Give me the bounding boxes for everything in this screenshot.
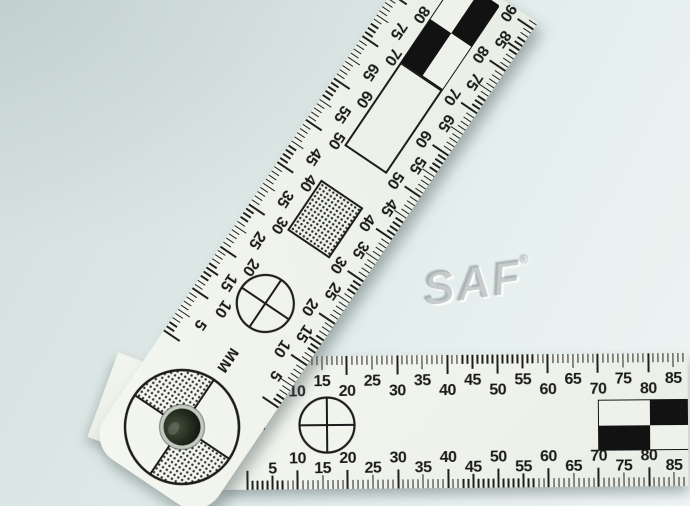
tick-mark xyxy=(322,94,330,100)
tick-mark xyxy=(583,478,584,487)
scale-number: 5 xyxy=(268,368,283,382)
tick-mark xyxy=(347,289,355,295)
tick-mark xyxy=(486,83,494,89)
tick-mark xyxy=(237,221,245,227)
tick-mark xyxy=(262,481,263,490)
tick-mark xyxy=(163,330,180,342)
scale-number: 55 xyxy=(514,374,531,386)
tick-mark xyxy=(682,353,683,362)
tick-mark xyxy=(628,477,629,486)
tick-mark xyxy=(371,23,379,29)
tick-mark xyxy=(507,355,508,364)
tick-mark xyxy=(663,477,664,486)
tick-mark xyxy=(483,479,484,488)
tick-mark xyxy=(379,10,387,16)
tick-mark xyxy=(432,162,440,168)
registered-trademark-icon: ® xyxy=(518,252,529,267)
tick-mark xyxy=(307,480,308,489)
tick-mark xyxy=(462,355,463,364)
tick-mark xyxy=(607,354,608,363)
scale-number: 20 xyxy=(339,386,356,398)
tick-mark xyxy=(333,310,341,316)
tick-mark xyxy=(553,478,554,487)
tick-mark xyxy=(577,354,578,363)
scale-number: 55 xyxy=(407,154,426,175)
tick-mark xyxy=(513,478,514,487)
tick-mark xyxy=(517,36,525,42)
tick-mark xyxy=(305,119,322,131)
tick-mark xyxy=(382,6,390,12)
tick-mark xyxy=(578,478,579,487)
tick-mark xyxy=(509,49,517,55)
scale-number: 25 xyxy=(364,376,381,388)
tick-mark xyxy=(381,238,389,244)
tick-mark xyxy=(547,354,549,373)
tick-mark xyxy=(506,53,514,59)
scale-number: 40 xyxy=(440,452,457,464)
tick-mark xyxy=(468,479,469,488)
tick-mark xyxy=(316,356,317,365)
scale-number: 15 xyxy=(314,463,331,475)
scale-number: 50 xyxy=(326,130,345,151)
tick-mark xyxy=(395,217,403,223)
tick-mark xyxy=(172,317,180,323)
tick-mark xyxy=(257,481,258,490)
scale-number: 45 xyxy=(464,375,481,387)
tick-mark xyxy=(326,356,327,365)
tick-mark xyxy=(248,203,265,215)
scale-number: 65 xyxy=(565,461,582,473)
tick-mark xyxy=(243,212,251,218)
tick-mark xyxy=(438,154,446,160)
tick-mark xyxy=(276,394,284,400)
tick-mark xyxy=(613,478,614,487)
tick-mark xyxy=(368,27,376,33)
tick-mark xyxy=(293,368,301,374)
tick-mark xyxy=(475,99,483,105)
tick-mark xyxy=(432,144,449,156)
tick-mark xyxy=(347,270,364,282)
tick-mark xyxy=(653,477,654,486)
tick-mark xyxy=(406,355,407,364)
tick-mark xyxy=(181,305,189,311)
tick-mark xyxy=(657,353,658,362)
tick-mark xyxy=(331,356,332,365)
tick-mark xyxy=(502,355,503,364)
tick-mark xyxy=(557,354,558,363)
tick-mark xyxy=(460,102,477,114)
tick-mark xyxy=(679,477,680,486)
scale-number: 65 xyxy=(564,374,581,386)
tick-mark xyxy=(463,116,471,122)
tick-mark xyxy=(169,321,177,327)
tick-mark xyxy=(412,479,413,488)
tick-mark xyxy=(302,124,310,130)
tick-mark xyxy=(568,478,569,487)
tick-mark xyxy=(272,476,273,490)
tick-mark xyxy=(391,356,392,365)
tick-mark xyxy=(266,179,274,185)
tick-mark xyxy=(466,112,474,118)
tick-mark xyxy=(487,355,488,364)
tick-mark xyxy=(446,355,448,374)
scale-number: 60 xyxy=(540,451,557,463)
tick-mark xyxy=(325,90,333,96)
tick-mark xyxy=(582,354,583,363)
scale-number: 35 xyxy=(414,375,431,387)
tick-mark xyxy=(592,354,593,363)
checker-cell-black xyxy=(599,425,649,450)
tick-mark xyxy=(283,153,291,159)
tick-mark xyxy=(622,353,623,367)
checker-cell-white xyxy=(650,424,689,449)
tick-mark xyxy=(294,137,302,143)
tick-mark xyxy=(297,470,299,489)
tick-mark xyxy=(533,478,534,487)
tick-mark xyxy=(354,48,362,54)
tick-mark xyxy=(192,288,209,300)
tick-mark xyxy=(642,353,643,362)
tick-mark xyxy=(246,471,248,490)
tick-mark xyxy=(608,478,609,487)
tick-mark xyxy=(543,478,544,487)
scale-number: 35 xyxy=(275,188,294,209)
tick-mark xyxy=(317,480,318,489)
scale-number: 70 xyxy=(441,86,460,107)
tick-mark xyxy=(597,354,599,373)
tick-mark xyxy=(246,208,254,214)
tick-mark xyxy=(209,263,217,269)
scale-number: 45 xyxy=(303,145,322,166)
tick-mark xyxy=(203,271,211,277)
tick-mark xyxy=(311,111,319,117)
tick-mark xyxy=(307,347,315,353)
tick-mark xyxy=(418,479,419,488)
tick-mark xyxy=(652,353,653,362)
tick-mark xyxy=(452,355,453,364)
scale-number: 80 xyxy=(640,450,657,462)
tick-mark xyxy=(385,2,393,8)
scale-number: 40 xyxy=(356,212,375,233)
tick-mark xyxy=(390,225,398,231)
tick-mark xyxy=(643,477,644,486)
tick-mark xyxy=(520,32,528,38)
scale-number: 40 xyxy=(439,385,456,397)
scale-number: 15 xyxy=(313,376,330,388)
tick-mark xyxy=(532,354,533,363)
scale-number: 30 xyxy=(269,214,288,235)
tick-mark xyxy=(288,377,296,383)
tick-mark xyxy=(552,354,553,363)
tick-mark xyxy=(352,480,353,489)
tick-mark xyxy=(458,479,459,488)
tick-mark xyxy=(392,221,400,227)
tick-mark xyxy=(422,474,423,488)
tick-mark xyxy=(463,479,464,488)
scale-number: 5 xyxy=(268,464,277,476)
tick-mark xyxy=(416,355,417,364)
tick-mark xyxy=(538,478,539,487)
scale-number: 65 xyxy=(360,61,379,82)
scale-number: 5 xyxy=(192,317,207,331)
tick-mark xyxy=(342,480,343,489)
tick-mark xyxy=(673,472,674,486)
tick-mark xyxy=(428,479,429,488)
tick-mark xyxy=(404,186,421,198)
tick-mark xyxy=(367,259,375,265)
tick-mark xyxy=(617,354,618,363)
tick-mark xyxy=(426,355,427,364)
tick-mark xyxy=(453,479,454,488)
scale-number: 35 xyxy=(415,462,432,474)
tick-mark xyxy=(333,77,350,89)
tick-mark xyxy=(496,355,498,374)
tick-mark xyxy=(229,233,237,239)
tick-mark xyxy=(232,229,240,235)
tick-mark xyxy=(421,355,422,369)
tick-mark xyxy=(297,132,305,138)
tick-mark xyxy=(321,356,322,370)
tick-mark xyxy=(563,478,564,487)
tick-mark xyxy=(567,354,568,363)
tick-mark xyxy=(548,468,550,487)
tick-mark xyxy=(279,389,287,395)
tick-mark xyxy=(375,228,392,240)
scale-number: 20 xyxy=(339,453,356,465)
tick-mark xyxy=(252,481,253,490)
tick-mark xyxy=(339,301,347,307)
scale-number: 25 xyxy=(247,230,266,251)
scale-number: 60 xyxy=(539,384,556,396)
tick-mark xyxy=(376,356,377,365)
tick-mark xyxy=(558,478,559,487)
tick-mark xyxy=(477,355,478,364)
scale-number: 15 xyxy=(218,272,237,293)
tick-mark xyxy=(305,352,313,358)
tick-mark xyxy=(331,82,339,88)
tick-mark xyxy=(274,166,282,172)
tick-mark xyxy=(517,354,518,363)
tick-mark xyxy=(438,479,439,488)
scale-number: 45 xyxy=(465,462,482,474)
tick-mark xyxy=(189,292,197,298)
tick-mark xyxy=(377,480,378,489)
scale-number: 25 xyxy=(364,463,381,475)
tick-mark xyxy=(429,167,437,173)
scale-number: 50 xyxy=(489,385,506,397)
scale-number: 85 xyxy=(666,460,683,472)
tick-mark xyxy=(364,263,372,269)
tick-mark xyxy=(684,477,685,486)
scale-number: 75 xyxy=(388,19,407,40)
scale-number: 60 xyxy=(413,128,432,149)
tick-mark xyxy=(443,479,444,488)
tick-mark xyxy=(372,475,373,489)
horizontal-checker-pattern xyxy=(598,399,688,451)
tick-mark xyxy=(175,313,183,319)
tick-mark xyxy=(669,477,670,486)
tick-mark xyxy=(375,246,383,252)
tick-mark xyxy=(523,473,524,487)
tick-mark xyxy=(367,480,368,489)
tick-mark xyxy=(198,279,206,285)
tick-mark xyxy=(488,479,489,488)
tick-mark xyxy=(421,179,429,185)
tick-mark xyxy=(662,353,663,362)
tick-mark xyxy=(424,175,432,181)
tick-mark xyxy=(658,477,659,486)
tick-mark xyxy=(402,479,403,488)
tick-mark xyxy=(588,478,589,487)
tick-mark xyxy=(344,293,352,299)
scale-number: 55 xyxy=(332,103,351,124)
tick-mark xyxy=(346,356,348,375)
diagonal-ruler-unit-label: MM xyxy=(214,345,241,375)
tick-mark xyxy=(677,353,678,362)
tick-mark xyxy=(226,237,234,243)
checker-cell-white xyxy=(599,400,649,425)
tick-mark xyxy=(627,353,628,362)
tick-mark xyxy=(386,356,387,365)
tick-mark xyxy=(612,354,613,363)
tick-mark xyxy=(587,354,588,363)
tick-mark xyxy=(345,61,353,67)
tick-mark xyxy=(407,479,408,488)
tick-mark xyxy=(396,355,398,374)
tick-mark xyxy=(637,353,638,362)
tick-mark xyxy=(397,469,399,488)
tick-mark xyxy=(648,467,650,486)
tick-mark xyxy=(460,120,468,126)
tick-mark xyxy=(446,141,454,147)
tick-mark xyxy=(319,312,336,324)
tick-mark xyxy=(489,60,506,72)
tick-mark xyxy=(431,355,432,364)
tick-mark xyxy=(296,364,304,370)
scale-number: 80 xyxy=(640,383,657,395)
scale-number: 35 xyxy=(350,238,369,259)
tick-mark xyxy=(332,480,333,489)
scale-number: 65 xyxy=(436,112,455,133)
tick-mark xyxy=(537,354,538,363)
tick-mark xyxy=(362,35,379,47)
tick-mark xyxy=(433,479,434,488)
tick-mark xyxy=(497,469,499,488)
tick-mark xyxy=(357,480,358,489)
tick-mark xyxy=(647,353,649,372)
tick-mark xyxy=(638,477,639,486)
tick-mark xyxy=(341,356,342,365)
scale-number: 30 xyxy=(328,254,347,275)
tick-mark xyxy=(212,258,220,264)
tick-mark xyxy=(287,480,288,489)
scale-number: 55 xyxy=(515,461,532,473)
tick-mark xyxy=(257,191,265,197)
tick-mark xyxy=(480,91,488,97)
photo-scene: SAF® MM 10152025303540455055606570758085… xyxy=(0,0,690,506)
tick-mark xyxy=(562,354,563,363)
tick-mark xyxy=(324,322,332,328)
scale-number: 50 xyxy=(490,452,507,464)
tick-mark xyxy=(457,355,458,364)
tick-mark xyxy=(517,18,534,30)
scale-number: 85 xyxy=(665,373,682,385)
tick-mark xyxy=(523,28,531,34)
tick-mark xyxy=(452,133,460,139)
tick-mark xyxy=(220,245,237,257)
tick-mark xyxy=(302,480,303,489)
tick-mark xyxy=(362,480,363,489)
tick-mark xyxy=(518,478,519,487)
tick-mark xyxy=(593,478,594,487)
tick-mark xyxy=(200,275,208,281)
tick-mark xyxy=(542,354,543,363)
tick-mark xyxy=(217,250,225,256)
scale-number: 75 xyxy=(615,460,632,472)
tick-mark xyxy=(353,280,361,286)
scale-number: 70 xyxy=(590,384,607,396)
tick-mark xyxy=(618,478,619,487)
tick-mark xyxy=(271,170,279,176)
tick-mark xyxy=(411,355,412,364)
tick-mark xyxy=(494,70,502,76)
tick-mark xyxy=(503,57,511,63)
tick-mark xyxy=(573,473,574,487)
tick-mark xyxy=(467,355,468,364)
tick-mark xyxy=(347,470,349,489)
tick-mark xyxy=(477,95,485,101)
tick-mark xyxy=(351,52,359,58)
tick-mark xyxy=(672,353,673,367)
tick-mark xyxy=(378,242,386,248)
tick-mark xyxy=(418,183,426,189)
tick-mark xyxy=(371,356,372,370)
scale-number: 30 xyxy=(389,452,406,464)
tick-mark xyxy=(356,356,357,365)
tick-mark xyxy=(328,86,336,92)
tick-mark xyxy=(322,326,330,332)
tick-mark xyxy=(404,204,412,210)
tick-mark xyxy=(492,74,500,80)
tick-mark xyxy=(316,335,324,341)
tick-mark xyxy=(493,479,494,488)
tick-mark xyxy=(401,355,402,364)
scale-number: 10 xyxy=(289,453,306,465)
tick-mark xyxy=(633,477,634,486)
scale-number: 70 xyxy=(590,451,607,463)
tick-mark xyxy=(473,474,474,488)
tick-mark xyxy=(183,300,191,306)
tick-mark xyxy=(339,69,347,75)
tick-mark xyxy=(337,480,338,489)
tick-mark xyxy=(623,472,624,486)
scale-number: 50 xyxy=(385,170,404,191)
tick-mark xyxy=(458,125,466,131)
tick-mark xyxy=(254,195,262,201)
tick-mark xyxy=(361,356,362,365)
tick-mark xyxy=(572,354,573,368)
tick-mark xyxy=(359,40,367,46)
tick-mark xyxy=(282,480,283,489)
tick-mark xyxy=(314,107,322,113)
tick-mark xyxy=(351,356,352,365)
tick-mark xyxy=(472,355,473,369)
tick-mark xyxy=(387,480,388,489)
tick-mark xyxy=(319,331,327,337)
tick-mark xyxy=(356,44,364,50)
tick-mark xyxy=(382,480,383,489)
tick-mark xyxy=(449,137,457,143)
